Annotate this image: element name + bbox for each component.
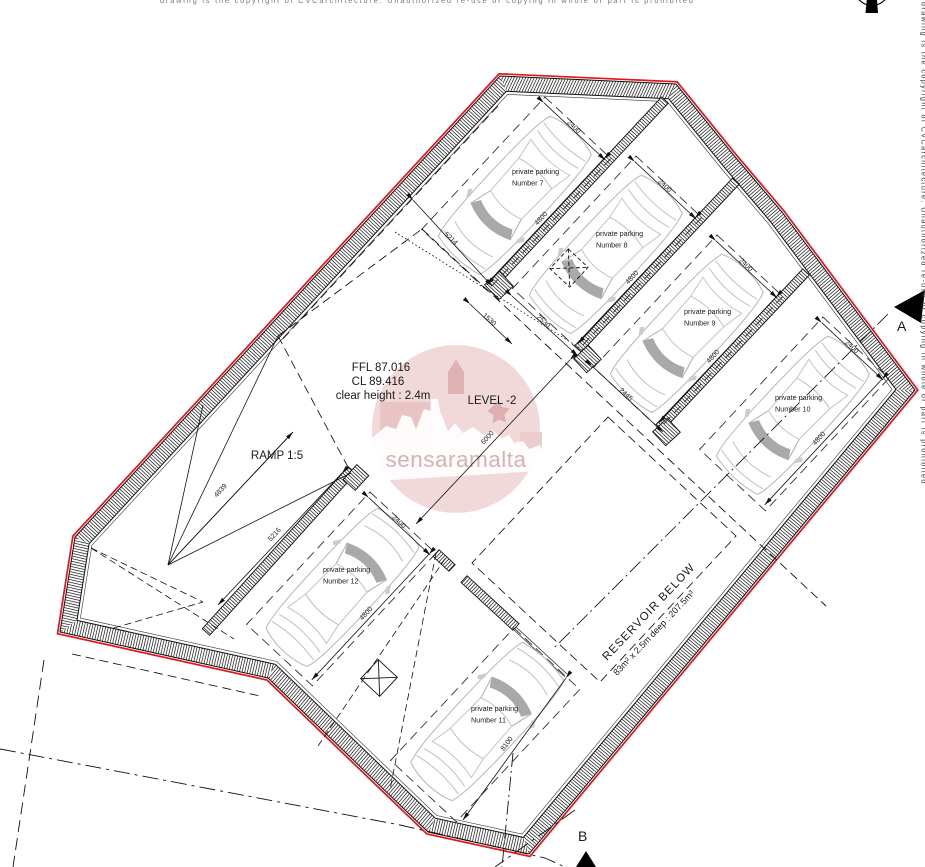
- svg-text:private parking: private parking: [471, 704, 518, 713]
- svg-text:clear height : 2.4m: clear height : 2.4m: [336, 390, 431, 402]
- svg-text:private parking: private parking: [684, 307, 731, 316]
- svg-text:private parking: private parking: [775, 393, 822, 402]
- svg-text:LEVEL -2: LEVEL -2: [468, 395, 517, 407]
- svg-text:drawing is the copyright of CV: drawing is the copyright of CVCarchitect…: [160, 0, 695, 5]
- svg-text:private parking: private parking: [596, 229, 643, 238]
- svg-text:Number 12: Number 12: [323, 577, 359, 586]
- svg-text:private parking: private parking: [323, 565, 370, 574]
- svg-text:A: A: [897, 318, 907, 334]
- svg-text:Number 11: Number 11: [471, 716, 506, 725]
- svg-text:FFL 87.016: FFL 87.016: [352, 362, 410, 374]
- svg-text:B: B: [578, 828, 587, 844]
- svg-text:CL 89.416: CL 89.416: [352, 376, 405, 388]
- svg-text:Number 10: Number 10: [775, 405, 811, 414]
- svg-text:private parking: private parking: [512, 167, 559, 176]
- svg-text:Number 7: Number 7: [512, 179, 544, 188]
- svg-text:RAMP 1:5: RAMP 1:5: [251, 450, 303, 462]
- svg-text:drawing is the copyright of CV: drawing is the copyright of CVCarchitect…: [920, 2, 925, 485]
- svg-text:Number 9: Number 9: [684, 319, 716, 328]
- svg-text:Number 8: Number 8: [596, 241, 628, 250]
- svg-text:sensaramalta: sensaramalta: [385, 447, 526, 472]
